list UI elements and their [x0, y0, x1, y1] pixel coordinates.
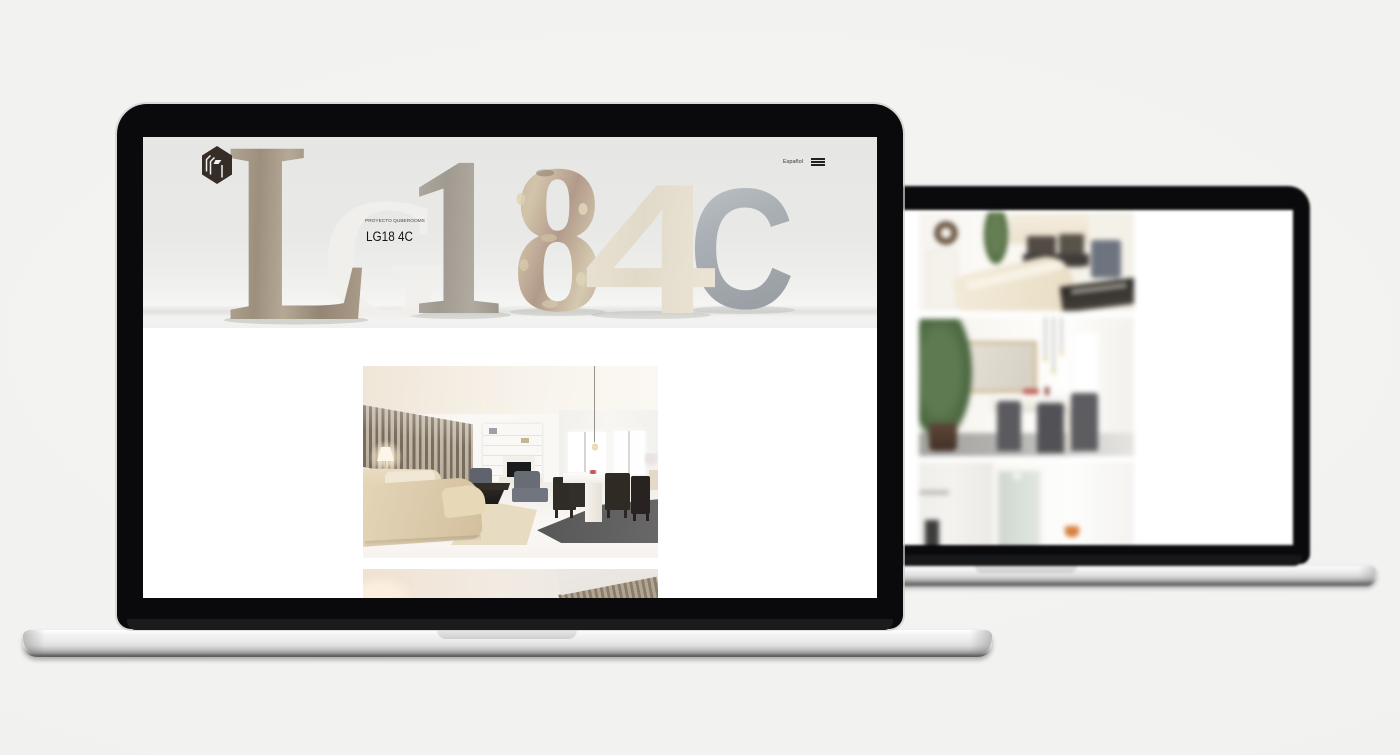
svg-text:1: 1 [402, 137, 510, 328]
svg-text:4: 4 [583, 146, 716, 328]
svg-text:L: L [227, 137, 371, 328]
